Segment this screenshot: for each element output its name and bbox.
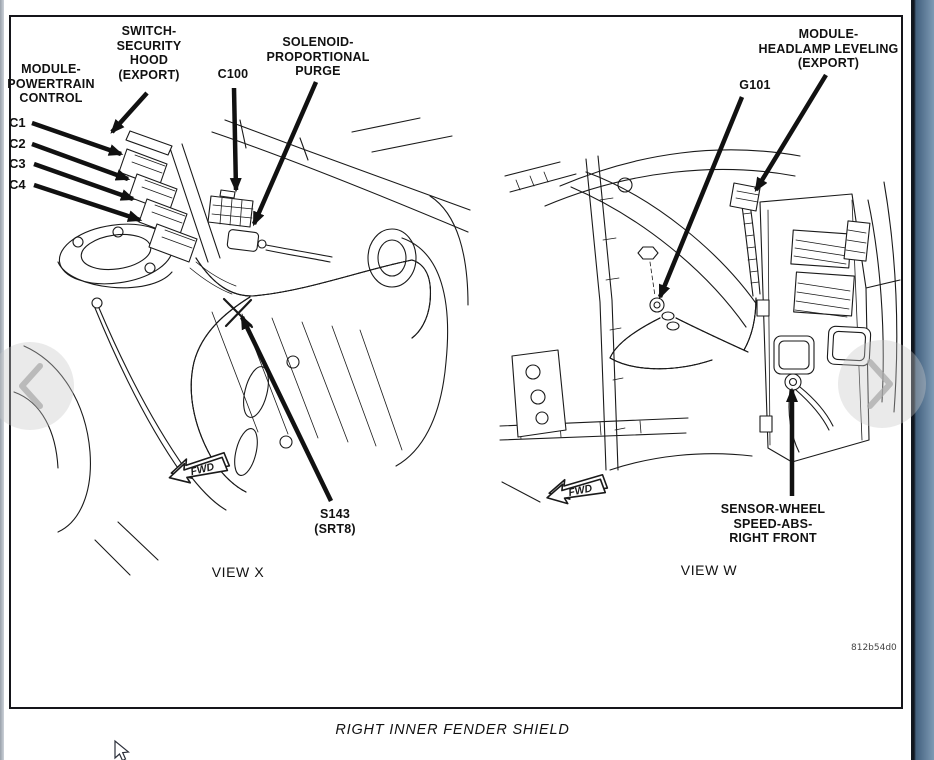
callout-arrow-switch-security — [112, 93, 147, 132]
callout-arrow-c4 — [34, 185, 140, 220]
label-switch-security-hood: SWITCH- SECURITY HOOD (EXPORT) — [103, 24, 195, 82]
callout-arrow-solenoid — [254, 82, 316, 224]
mouse-cursor-icon — [115, 741, 129, 760]
label-module-powertrain-control: MODULE- POWERTRAIN CONTROL — [0, 62, 102, 106]
label-c1: C1 — [9, 115, 26, 130]
view-x-illustration — [14, 118, 470, 575]
callout-arrow-c3 — [34, 164, 133, 199]
label-solenoid-proportional-purge: SOLENOID- PROPORTIONAL PURGE — [247, 35, 389, 79]
prev-page-overlay[interactable] — [0, 342, 74, 430]
fwd-arrow-view-w: FWD — [544, 471, 609, 507]
diagram-canvas: FWD FWD — [0, 0, 934, 760]
label-g101: G101 — [733, 78, 777, 93]
label-c4: C4 — [9, 177, 26, 192]
label-c2: C2 — [9, 136, 26, 151]
label-s143: S143 (SRT8) — [300, 507, 370, 536]
figure-caption: RIGHT INNER FENDER SHIELD — [0, 721, 905, 739]
callout-arrow-s143 — [242, 317, 331, 501]
label-c3: C3 — [9, 156, 26, 171]
label-view-w: VIEW W — [678, 562, 740, 578]
callout-arrow-c100 — [234, 88, 236, 190]
label-module-headlamp-leveling: MODULE- HEADLAMP LEVELING (EXPORT) — [752, 27, 905, 71]
label-sensor-wheel-speed: SENSOR-WHEEL SPEED-ABS- RIGHT FRONT — [697, 502, 849, 546]
next-page-overlay[interactable] — [838, 340, 926, 428]
label-view-x: VIEW X — [207, 564, 269, 580]
callout-arrow-g101 — [660, 97, 742, 297]
figure-code: 812b54d0 — [851, 643, 897, 654]
